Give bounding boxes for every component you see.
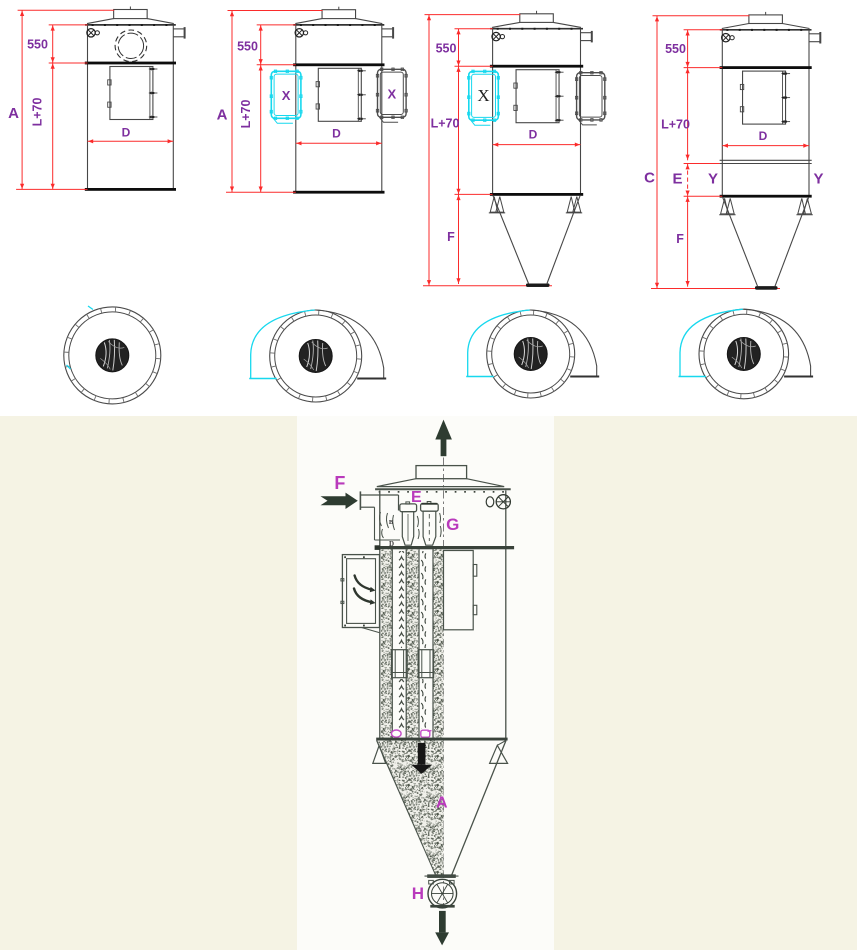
- svg-text:550: 550: [237, 40, 258, 54]
- svg-text:L+70: L+70: [31, 98, 45, 127]
- svg-text:D: D: [529, 127, 538, 141]
- svg-text:B: B: [389, 519, 394, 526]
- svg-text:D: D: [122, 126, 131, 140]
- svg-text:A: A: [8, 105, 19, 122]
- svg-text:L+70: L+70: [239, 100, 253, 129]
- svg-text:C: C: [644, 170, 655, 187]
- svg-text:F: F: [334, 473, 345, 493]
- svg-text:E: E: [672, 171, 682, 188]
- svg-text:D: D: [759, 129, 768, 143]
- svg-text:X: X: [477, 86, 489, 105]
- svg-text:F: F: [447, 230, 455, 244]
- svg-text:550: 550: [27, 38, 48, 52]
- svg-text:A: A: [217, 107, 228, 124]
- svg-text:L+70: L+70: [431, 117, 460, 131]
- svg-text:L+70: L+70: [661, 118, 690, 132]
- svg-text:H: H: [412, 884, 424, 903]
- svg-text:G: G: [446, 515, 459, 534]
- svg-text:D: D: [332, 127, 341, 141]
- svg-text:F: F: [676, 232, 684, 246]
- svg-text:X: X: [387, 86, 396, 101]
- svg-text:Y: Y: [708, 171, 718, 188]
- svg-text:Y: Y: [813, 171, 823, 188]
- svg-text:X: X: [282, 88, 291, 103]
- svg-text:A: A: [436, 795, 448, 812]
- svg-text:550: 550: [665, 42, 686, 56]
- svg-text:550: 550: [436, 42, 457, 56]
